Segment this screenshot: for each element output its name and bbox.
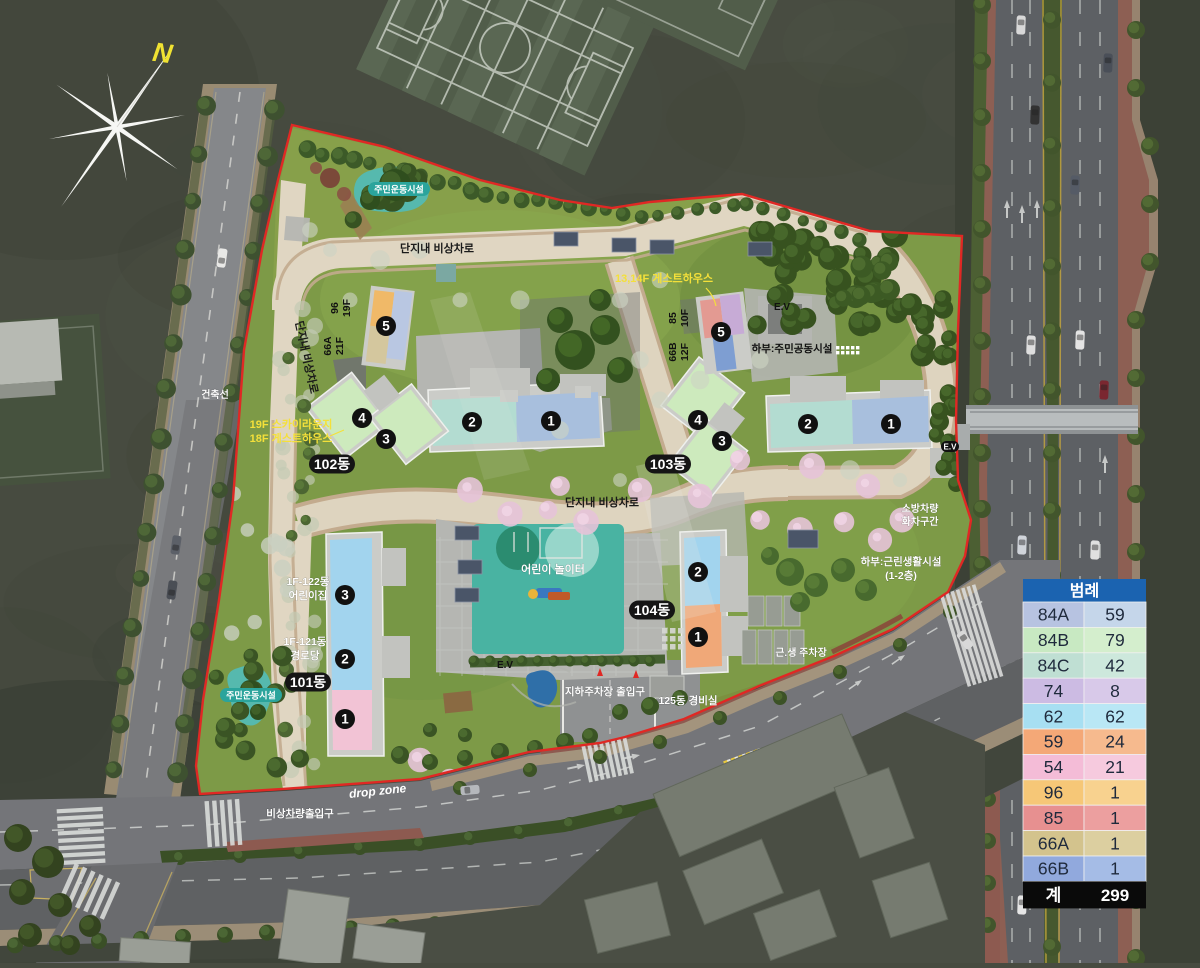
- svg-text:19F 스카이라운지: 19F 스카이라운지: [250, 417, 333, 431]
- svg-text:18F 게스트하우스: 18F 게스트하우스: [250, 431, 333, 445]
- svg-text:근.생 주차장: 근.생 주차장: [775, 646, 827, 659]
- svg-text:1: 1: [1110, 808, 1120, 828]
- svg-text:103동: 103동: [650, 456, 686, 472]
- svg-text:66B: 66B: [1038, 859, 1069, 879]
- svg-text:13,14F 게스트하우스: 13,14F 게스트하우스: [615, 271, 713, 285]
- svg-text:85: 85: [667, 312, 679, 324]
- svg-text:96: 96: [1044, 783, 1063, 803]
- svg-text:3: 3: [341, 588, 349, 603]
- svg-text:299: 299: [1101, 886, 1129, 905]
- svg-text:2: 2: [341, 652, 349, 667]
- svg-text:주민운동시설: 주민운동시설: [226, 690, 276, 701]
- svg-text:59: 59: [1105, 605, 1124, 625]
- svg-text:1: 1: [547, 414, 555, 429]
- svg-text:1: 1: [1110, 783, 1120, 803]
- svg-text:1: 1: [1110, 833, 1120, 853]
- svg-text:3: 3: [718, 434, 726, 449]
- svg-text:단지내 비상차로: 단지내 비상차로: [565, 495, 639, 509]
- svg-text:4: 4: [358, 411, 366, 426]
- svg-text:42: 42: [1105, 656, 1124, 676]
- svg-text:66A: 66A: [322, 336, 334, 356]
- svg-text:85: 85: [1044, 808, 1063, 828]
- svg-text:84A: 84A: [1038, 605, 1069, 625]
- svg-text:E.V: E.V: [774, 302, 790, 313]
- svg-text:1: 1: [694, 630, 702, 645]
- svg-text:비상차량출입구: 비상차량출입구: [266, 807, 334, 820]
- svg-text:21: 21: [1105, 757, 1124, 777]
- svg-text:101동: 101동: [290, 674, 326, 690]
- svg-text:하부:주민공동시설: 하부:주민공동시설: [752, 342, 833, 355]
- svg-text:1: 1: [341, 712, 349, 727]
- svg-text:5: 5: [382, 319, 390, 334]
- svg-text:5: 5: [717, 325, 725, 340]
- svg-text:화차구간: 화차구간: [902, 515, 940, 528]
- svg-text:E.V: E.V: [944, 443, 958, 452]
- svg-text:66A: 66A: [1038, 833, 1069, 853]
- svg-text:104동: 104동: [634, 602, 670, 618]
- svg-text:건축선: 건축선: [201, 388, 229, 401]
- svg-text:84B: 84B: [1038, 630, 1069, 650]
- svg-text:어린이집: 어린이집: [289, 589, 328, 602]
- svg-text:계: 계: [1046, 886, 1062, 905]
- svg-text:19F: 19F: [341, 298, 353, 317]
- svg-text:62: 62: [1105, 706, 1124, 726]
- svg-text:10F: 10F: [679, 308, 691, 327]
- svg-text:2: 2: [468, 415, 476, 430]
- svg-text:소방차량: 소방차량: [902, 502, 940, 515]
- svg-text:단지내 비상차로: 단지내 비상차로: [400, 241, 474, 255]
- svg-text:12F: 12F: [679, 342, 691, 361]
- svg-text:주민운동시설: 주민운동시설: [374, 184, 424, 195]
- svg-text:어린이 놀이터: 어린이 놀이터: [521, 562, 585, 576]
- svg-text:96: 96: [329, 302, 341, 314]
- svg-text:8: 8: [1110, 681, 1120, 701]
- svg-text:74: 74: [1044, 681, 1064, 701]
- svg-text:24: 24: [1105, 732, 1125, 752]
- svg-text:59: 59: [1044, 732, 1063, 752]
- svg-text:102동: 102동: [314, 456, 350, 472]
- svg-text:54: 54: [1044, 757, 1064, 777]
- svg-text:4: 4: [694, 413, 702, 428]
- svg-text:125동 경비실: 125동 경비실: [658, 694, 717, 707]
- svg-text:1: 1: [887, 417, 895, 432]
- svg-text:경로당: 경로당: [291, 649, 320, 662]
- svg-text:2: 2: [694, 565, 702, 580]
- svg-text:1F-121동: 1F-121동: [284, 636, 327, 648]
- svg-text:범례: 범례: [1070, 582, 1099, 600]
- svg-text:지하주차장 출입구: 지하주차장 출입구: [565, 685, 646, 698]
- svg-text:84C: 84C: [1037, 656, 1069, 676]
- svg-text:1F-122동: 1F-122동: [287, 576, 330, 588]
- svg-text:(1-2층): (1-2층): [885, 569, 917, 582]
- svg-text:21F: 21F: [334, 336, 346, 355]
- svg-text:3: 3: [382, 432, 390, 447]
- svg-text:79: 79: [1105, 630, 1124, 650]
- svg-text:하부:근린생활시설: 하부:근린생활시설: [861, 555, 942, 568]
- svg-text:2: 2: [804, 417, 812, 432]
- svg-text:E.V: E.V: [497, 660, 513, 671]
- svg-text:1: 1: [1110, 859, 1120, 879]
- svg-text:66B: 66B: [667, 342, 679, 362]
- svg-text:62: 62: [1044, 706, 1063, 726]
